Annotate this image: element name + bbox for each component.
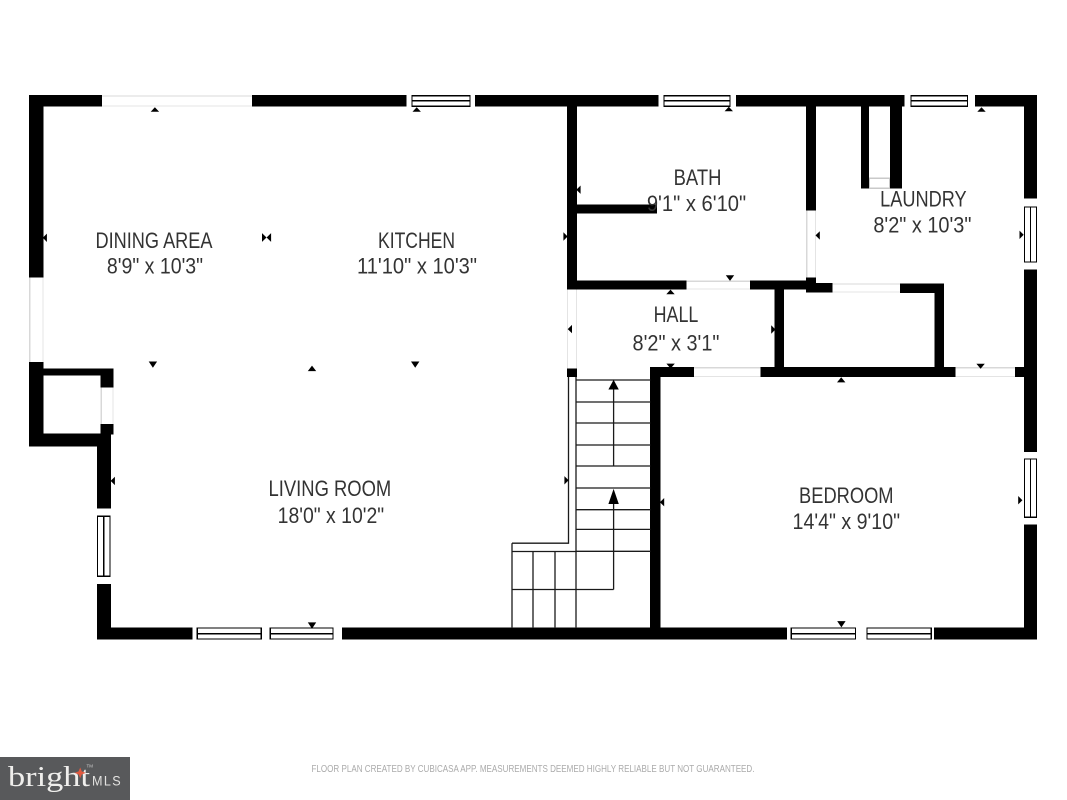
svg-text:DINING AREA: DINING AREA: [96, 228, 213, 253]
svg-text:KITCHEN: KITCHEN: [378, 228, 455, 253]
svg-text:9'1" x 6'10": 9'1" x 6'10": [647, 191, 746, 216]
svg-text:bright: bright: [8, 762, 90, 793]
svg-text:14'4" x 9'10": 14'4" x 9'10": [793, 509, 901, 534]
svg-text:TM: TM: [87, 764, 94, 769]
svg-text:11'10" x 10'3": 11'10" x 10'3": [357, 254, 477, 279]
svg-text:LAUNDRY: LAUNDRY: [880, 186, 967, 211]
svg-text:LIVING ROOM: LIVING ROOM: [269, 476, 392, 501]
svg-text:8'9" x 10'3": 8'9" x 10'3": [107, 254, 203, 279]
svg-text:8'2" x 10'3": 8'2" x 10'3": [873, 213, 971, 238]
svg-text:BATH: BATH: [674, 165, 722, 190]
svg-text:BEDROOM: BEDROOM: [799, 483, 894, 508]
svg-text:HALL: HALL: [654, 302, 699, 327]
svg-text:8'2" x 3'1": 8'2" x 3'1": [633, 331, 720, 356]
svg-text:18'0" x 10'2": 18'0" x 10'2": [278, 503, 385, 528]
svg-text:FLOOR PLAN CREATED BY CUBICASA: FLOOR PLAN CREATED BY CUBICASA APP. MEAS…: [312, 764, 755, 775]
svg-text:MLS: MLS: [92, 773, 122, 789]
